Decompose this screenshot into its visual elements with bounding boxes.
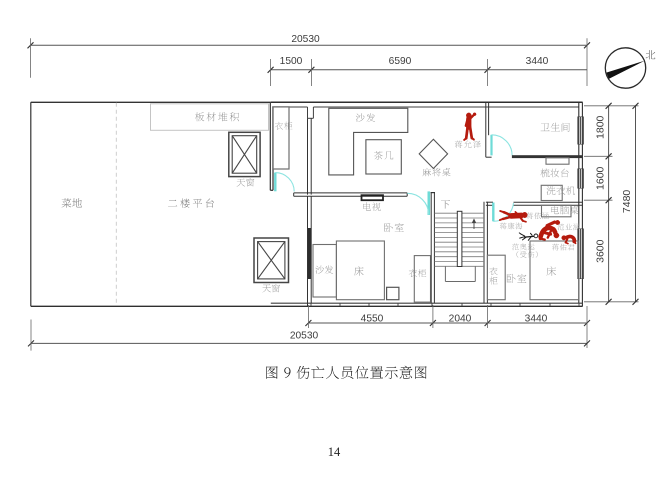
svg-text:6590: 6590 [389,56,412,67]
svg-text:14: 14 [328,445,341,459]
svg-text:7480: 7480 [621,190,633,214]
svg-text:3440: 3440 [525,314,548,325]
svg-text:3600: 3600 [595,239,607,263]
svg-text:1600: 1600 [595,166,607,190]
svg-text:4550: 4550 [361,314,384,325]
svg-text:1500: 1500 [280,56,303,67]
svg-text:3440: 3440 [526,56,549,67]
svg-text:20530: 20530 [290,330,319,341]
svg-text:1800: 1800 [595,115,607,139]
svg-text:20530: 20530 [291,34,320,45]
svg-text:2040: 2040 [449,314,472,325]
